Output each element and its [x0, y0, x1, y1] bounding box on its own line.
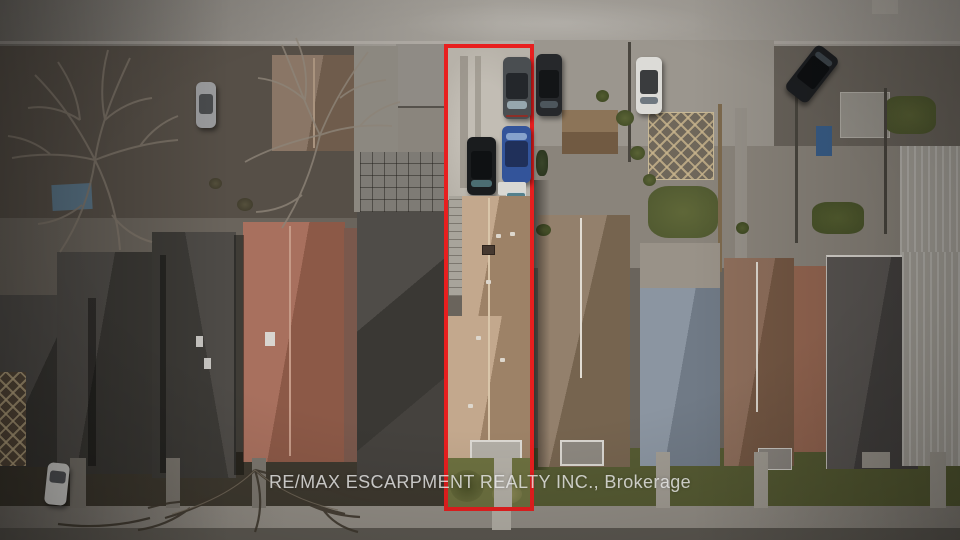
roof-vent	[468, 404, 473, 408]
car-glass	[505, 141, 528, 167]
aerial-photo: RE/MAX ESCARPMENT REALTY INC., Brokerage	[0, 0, 960, 540]
roof-vent	[476, 336, 481, 340]
chimney	[482, 245, 495, 255]
watermark-text: RE/MAX ESCARPMENT REALTY INC., Brokerage	[269, 472, 691, 493]
subject-lot-outline	[444, 44, 534, 511]
bare-tree-top-left	[8, 50, 178, 252]
car-windshield	[507, 101, 527, 109]
roof-vent	[510, 232, 515, 236]
car-windshield	[506, 133, 527, 140]
subject-house-shadow	[534, 180, 550, 470]
car-glass	[471, 151, 492, 179]
bare-tree-mid-left	[245, 38, 400, 228]
roof-vent	[486, 280, 491, 284]
blue-suv	[502, 126, 531, 183]
grey-suv	[503, 57, 531, 119]
subject-roof-ridge	[488, 198, 490, 460]
car-windshield	[471, 180, 492, 187]
subject-roof-upper	[462, 196, 530, 316]
roof-vent	[500, 358, 505, 362]
car-taillights	[506, 115, 528, 117]
roof-vent	[496, 234, 501, 238]
front-walkway-extension	[492, 511, 511, 530]
car-glass	[506, 73, 528, 99]
black-suv	[467, 137, 496, 195]
